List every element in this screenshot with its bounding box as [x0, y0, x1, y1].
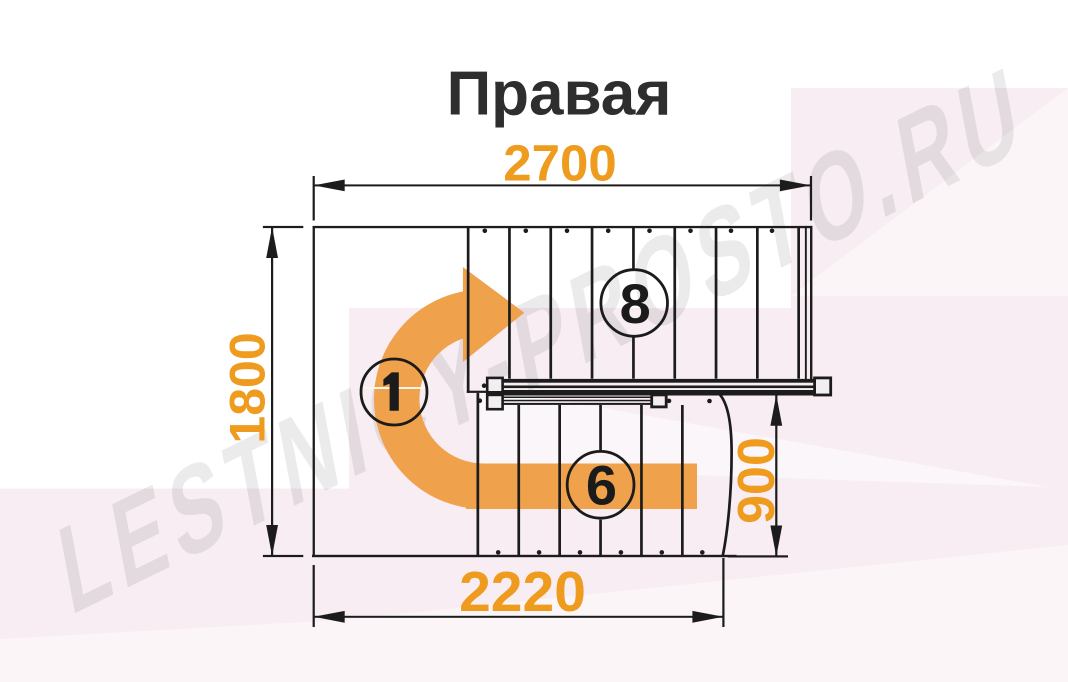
svg-text:1800: 1800 [220, 332, 276, 443]
svg-text:900: 900 [728, 437, 786, 524]
svg-text:6: 6 [586, 453, 617, 516]
svg-text:2700: 2700 [503, 135, 616, 192]
svg-text:Правая: Правая [447, 60, 672, 129]
svg-text:2220: 2220 [459, 560, 586, 624]
svg-text:8: 8 [620, 272, 651, 335]
